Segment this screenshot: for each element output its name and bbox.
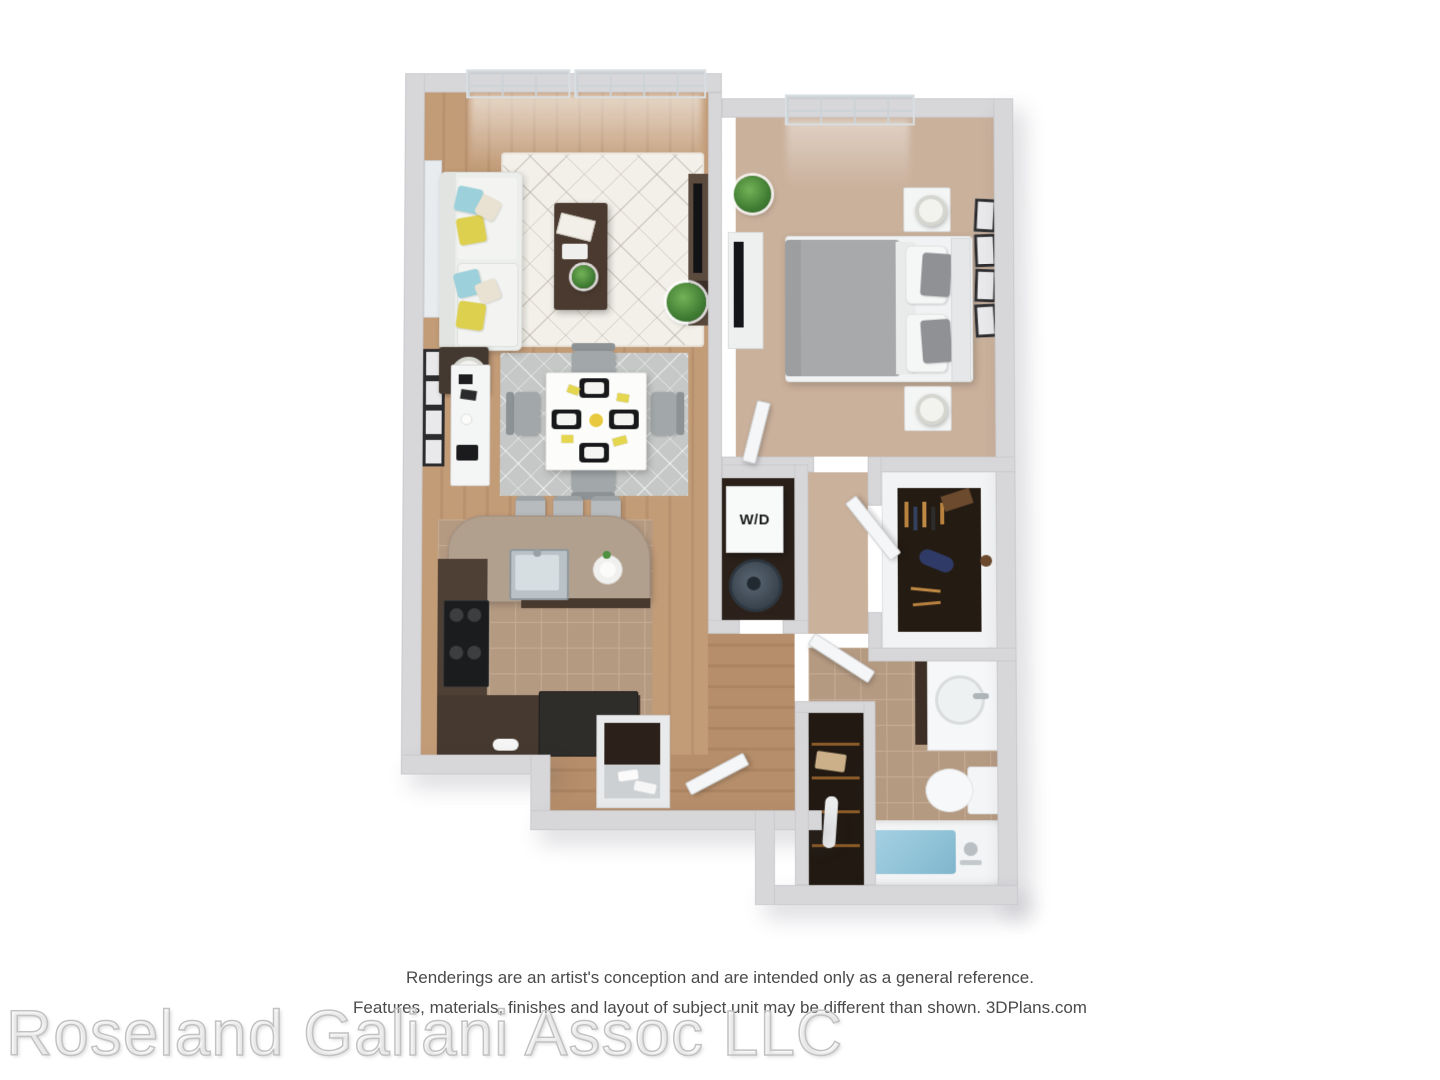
kitchen-sink-basin <box>515 555 559 590</box>
bed-pillow-accent <box>920 252 952 297</box>
watermark: Roseland Galiani Assoc LLC <box>6 996 843 1070</box>
wall-art-frame <box>423 408 445 437</box>
vanity-sink <box>935 675 985 725</box>
living-room-window <box>466 69 570 98</box>
headboard <box>951 238 971 382</box>
exterior-wall-entry-bottom <box>530 810 822 830</box>
disclaimer-line-1: Renderings are an artist's conception an… <box>0 968 1440 988</box>
bed-duvet <box>785 240 900 376</box>
stove-burner <box>467 608 481 622</box>
floor-plan: W/D <box>0 17 1440 1080</box>
coffee-table-plant <box>572 265 596 288</box>
hanging-clothes <box>904 502 908 528</box>
kitchen-faucet <box>533 549 541 557</box>
placemat <box>609 410 639 430</box>
sofa-back <box>439 172 456 349</box>
counter-dish <box>493 739 519 751</box>
closet-wall-bottom <box>868 648 1016 662</box>
washer-dryer-unit: W/D <box>726 486 784 553</box>
nightstand-lamp <box>916 394 948 425</box>
hanging-clothes <box>913 507 917 531</box>
bathroom-wall-left <box>795 701 809 885</box>
hanging-clothes <box>922 502 926 528</box>
linen-shelf-edge <box>812 844 860 847</box>
throw-pillow-yellow <box>455 214 487 246</box>
water-heater-cap <box>747 577 761 591</box>
floor-plant-living <box>667 283 707 322</box>
placemat <box>552 410 582 430</box>
counter-vase-sprig <box>603 551 611 559</box>
dining-chair <box>651 392 677 435</box>
laundry-closet-wall-stub <box>783 620 809 634</box>
dining-chair <box>514 392 540 435</box>
dining-chair-back <box>676 392 684 435</box>
dining-chair-back <box>506 392 514 435</box>
stove-burner <box>449 646 463 660</box>
sideboard-decor <box>459 374 473 384</box>
vanity-faucet <box>973 693 989 699</box>
tv-bedroom <box>734 242 744 328</box>
living-room-window <box>574 69 706 98</box>
exterior-wall-bath-bottom <box>755 885 1018 905</box>
tv-living <box>693 183 702 272</box>
floor-plant-bedroom <box>734 176 771 213</box>
dining-chair-back <box>572 343 616 351</box>
exterior-wall-right <box>993 98 1018 905</box>
wall-art-frame <box>423 437 445 466</box>
coffee-table-tray <box>562 244 588 260</box>
exterior-wall-bathwing-left <box>755 810 775 905</box>
tub-handle <box>960 860 982 865</box>
laundry-closet-wall-stub <box>708 620 740 634</box>
pantry-upper-shelf <box>604 723 660 765</box>
exterior-wall-left <box>401 73 425 774</box>
interior-wall-closet-top <box>868 457 1016 473</box>
exterior-wall-kitchen-bottom <box>401 755 551 775</box>
throw-pillow-yellow <box>455 300 486 331</box>
toilet-bowl <box>925 769 973 813</box>
closet-wall-left-stub <box>868 457 882 506</box>
tub-faucet <box>964 842 978 856</box>
sideboard-decor <box>460 389 477 401</box>
vestibule-carpet <box>808 472 868 633</box>
linen-shelf-edge <box>812 743 860 746</box>
linen-shelf-edge <box>812 776 860 779</box>
stove-burner <box>467 646 481 660</box>
sideboard-tray <box>456 445 478 461</box>
linen-closet-wall-right <box>863 701 876 885</box>
placemat <box>579 378 609 398</box>
hanging-clothes <box>931 507 935 531</box>
laundry-closet-wall-right <box>794 464 808 633</box>
bathtub-water <box>872 830 956 874</box>
bed-pillow-accent <box>920 319 953 364</box>
sideboard-vase <box>460 413 472 425</box>
closet-knob <box>980 555 992 567</box>
bedroom-window <box>785 94 915 125</box>
placemat <box>579 443 609 463</box>
interior-wall-living-bedroom <box>708 92 722 633</box>
napkin <box>561 435 573 443</box>
counter-vase <box>593 555 623 585</box>
table-centerpiece <box>587 412 605 430</box>
nightstand-lamp <box>915 195 947 226</box>
stove-burner <box>449 608 463 622</box>
